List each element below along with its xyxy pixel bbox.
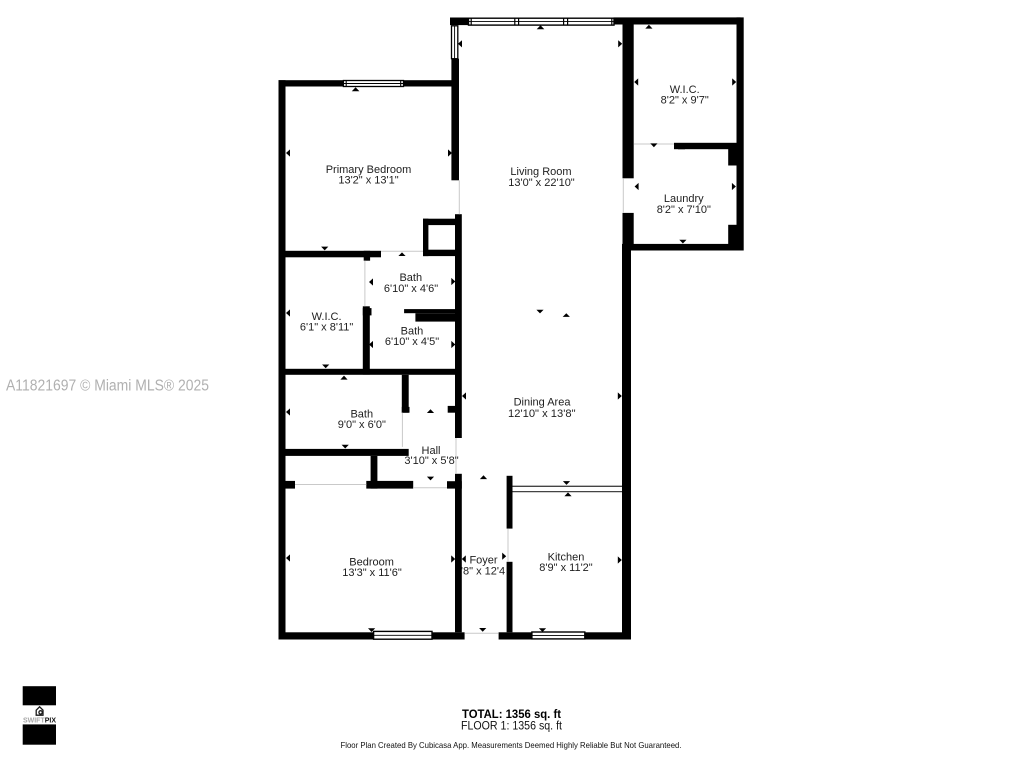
svg-text:6'10" x 4'5": 6'10" x 4'5"	[385, 336, 439, 348]
svg-text:Dining Area: Dining Area	[514, 397, 572, 409]
svg-text:A11821697 © Miami MLS® 2025: A11821697 © Miami MLS® 2025	[6, 378, 209, 395]
svg-text:8'9" x 11'2": 8'9" x 11'2"	[539, 562, 592, 574]
svg-text:9'0" x 6'0": 9'0" x 6'0"	[338, 419, 386, 431]
svg-text:Floor Plan Created By Cubicasa: Floor Plan Created By Cubicasa App. Meas…	[341, 740, 682, 750]
svg-text:'8" x 12'4: '8" x 12'4	[461, 565, 505, 577]
svg-text:13'0" x 22'10": 13'0" x 22'10"	[508, 177, 575, 189]
svg-text:6'10" x 4'6": 6'10" x 4'6"	[384, 283, 438, 295]
svg-text:13'3" x 11'6": 13'3" x 11'6"	[342, 567, 402, 579]
svg-text:3'10" x 5'8": 3'10" x 5'8"	[404, 455, 458, 467]
svg-text:13'2" x 13'1": 13'2" x 13'1"	[338, 175, 398, 187]
svg-text:8'2" x 9'7": 8'2" x 9'7"	[661, 95, 709, 107]
svg-text:TOTAL: 1356 sq. ft: TOTAL: 1356 sq. ft	[462, 709, 561, 721]
svg-text:FLOOR 1: 1356 sq. ft: FLOOR 1: 1356 sq. ft	[461, 721, 563, 733]
svg-text:8'2" x 7'10": 8'2" x 7'10"	[657, 204, 711, 216]
svg-text:6'1" x 8'11": 6'1" x 8'11"	[300, 322, 353, 334]
svg-text:12'10" x 13'8": 12'10" x 13'8"	[508, 408, 576, 420]
svg-text:SWIFTPIX: SWIFTPIX	[23, 718, 56, 725]
